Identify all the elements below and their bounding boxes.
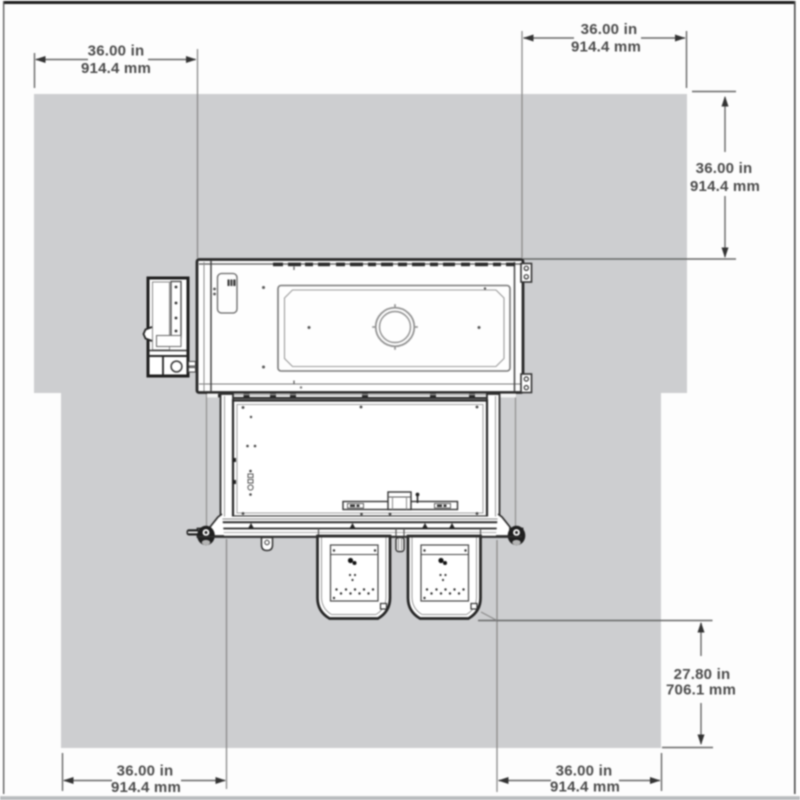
- svg-text:706.1 mm: 706.1 mm: [666, 682, 736, 699]
- svg-text:914.4 mm: 914.4 mm: [111, 779, 181, 796]
- svg-text:36.00 in: 36.00 in: [556, 763, 613, 780]
- svg-text:914.4 mm: 914.4 mm: [81, 60, 151, 77]
- svg-text:914.4 mm: 914.4 mm: [571, 39, 641, 56]
- svg-text:36.00 in: 36.00 in: [696, 160, 753, 177]
- svg-text:914.4 mm: 914.4 mm: [550, 779, 620, 796]
- svg-text:914.4 mm: 914.4 mm: [690, 178, 760, 195]
- svg-text:36.00 in: 36.00 in: [88, 43, 145, 60]
- svg-text:27.80 in: 27.80 in: [674, 666, 731, 683]
- svg-text:36.00 in: 36.00 in: [581, 21, 638, 38]
- svg-text:36.00 in: 36.00 in: [117, 763, 174, 780]
